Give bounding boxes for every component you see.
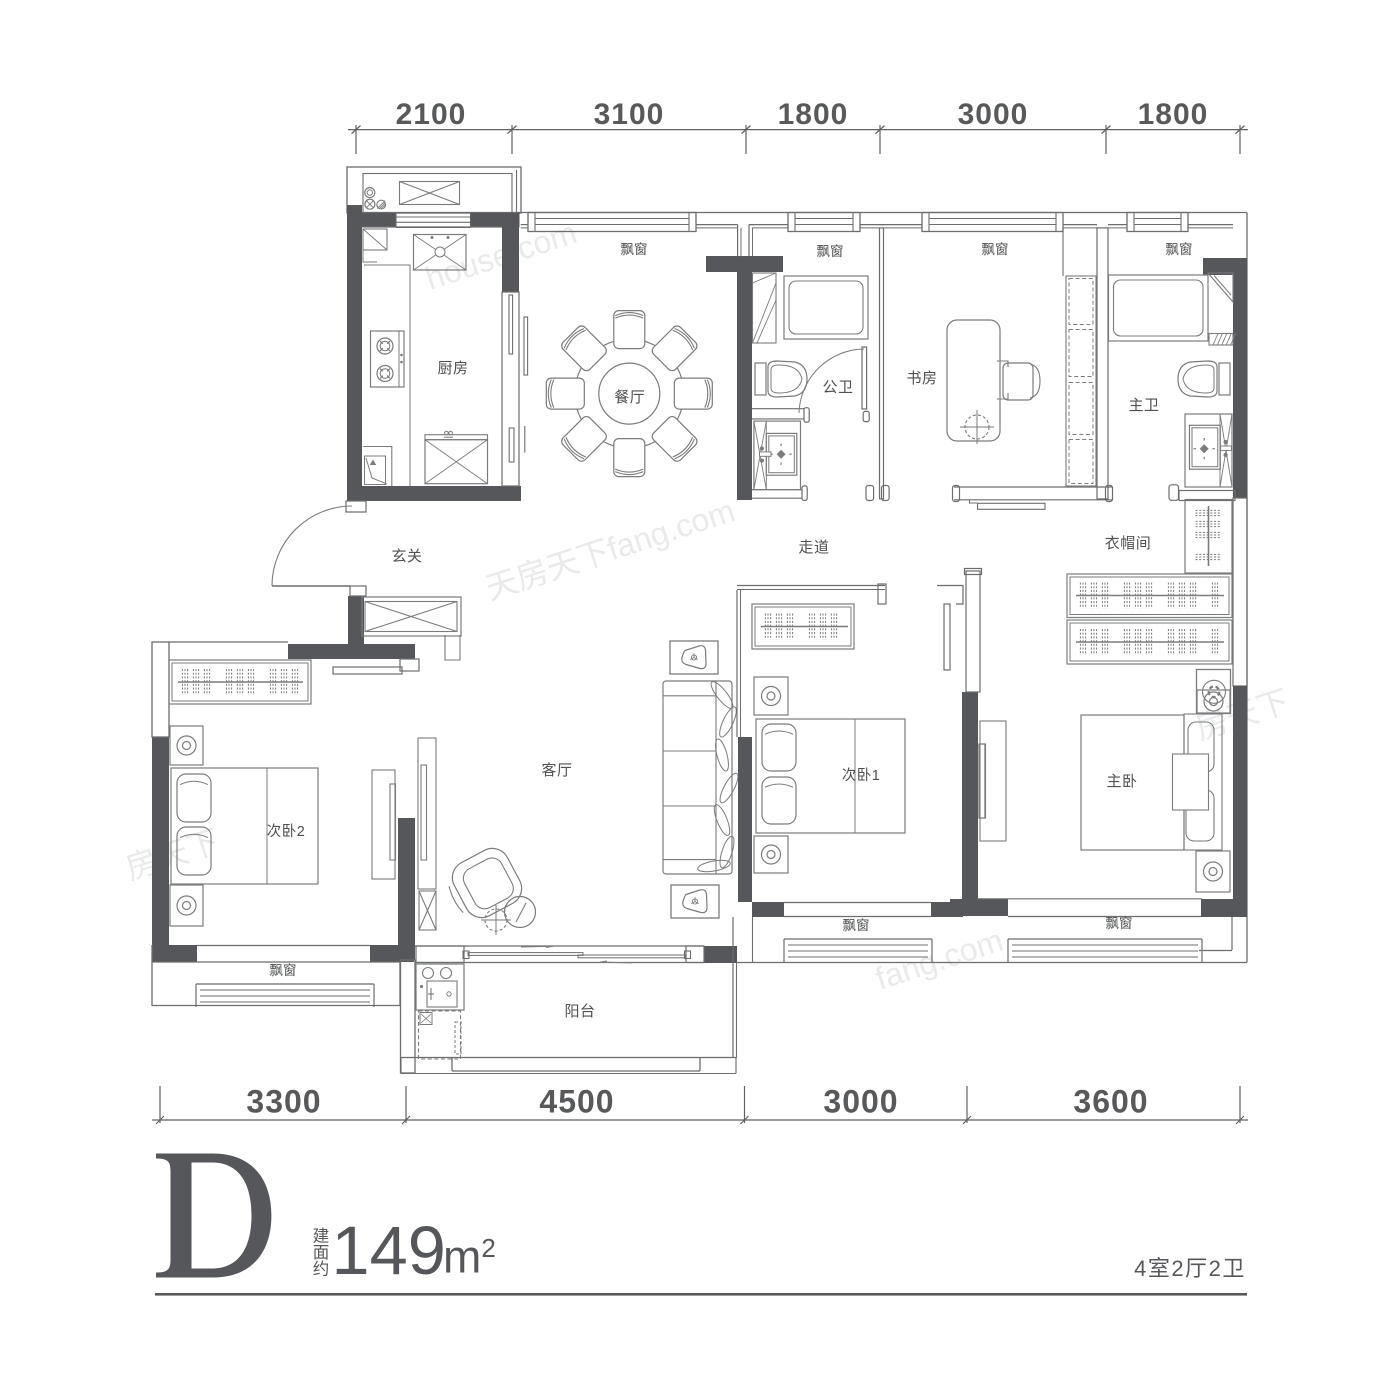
svg-text:主卫: 主卫 bbox=[1128, 397, 1159, 414]
svg-text:3100: 3100 bbox=[594, 98, 665, 131]
svg-text:主卧: 主卧 bbox=[1106, 773, 1137, 790]
svg-text:飘窗: 飘窗 bbox=[1106, 915, 1133, 931]
svg-text:4室2厅2卫: 4室2厅2卫 bbox=[1134, 1256, 1246, 1281]
svg-text:次卧2: 次卧2 bbox=[267, 823, 306, 840]
svg-text:厨房: 厨房 bbox=[437, 360, 468, 377]
svg-text:客厅: 客厅 bbox=[541, 762, 572, 779]
svg-text:书房: 书房 bbox=[906, 370, 937, 387]
svg-text:公卫: 公卫 bbox=[822, 379, 853, 396]
svg-text:149: 149 bbox=[332, 1212, 446, 1289]
svg-text:1800: 1800 bbox=[778, 98, 849, 131]
svg-text:飘窗: 飘窗 bbox=[843, 917, 870, 933]
svg-text:飘窗: 飘窗 bbox=[270, 962, 297, 978]
svg-text:飘窗: 飘窗 bbox=[817, 243, 844, 259]
svg-text:3000: 3000 bbox=[823, 1084, 898, 1120]
svg-text:建: 建 bbox=[313, 1227, 330, 1246]
svg-text:飘窗: 飘窗 bbox=[1166, 241, 1193, 257]
svg-text:飘窗: 飘窗 bbox=[982, 241, 1009, 257]
svg-text:飘窗: 飘窗 bbox=[621, 241, 648, 257]
svg-text:衣帽间: 衣帽间 bbox=[1105, 535, 1152, 552]
svg-text:玄关: 玄关 bbox=[391, 548, 422, 565]
svg-text:次卧1: 次卧1 bbox=[842, 767, 881, 784]
svg-text:4500: 4500 bbox=[539, 1084, 614, 1120]
svg-text:面: 面 bbox=[313, 1244, 330, 1262]
svg-text:3600: 3600 bbox=[1073, 1084, 1148, 1120]
svg-text:2100: 2100 bbox=[396, 98, 467, 131]
svg-text:3300: 3300 bbox=[246, 1084, 321, 1120]
svg-text:餐厅: 餐厅 bbox=[614, 389, 645, 406]
svg-text:1800: 1800 bbox=[1138, 98, 1209, 131]
svg-text:约: 约 bbox=[313, 1260, 330, 1279]
svg-text:阳台: 阳台 bbox=[564, 1003, 595, 1020]
svg-text:3000: 3000 bbox=[958, 98, 1029, 131]
svg-text:走道: 走道 bbox=[798, 539, 829, 556]
